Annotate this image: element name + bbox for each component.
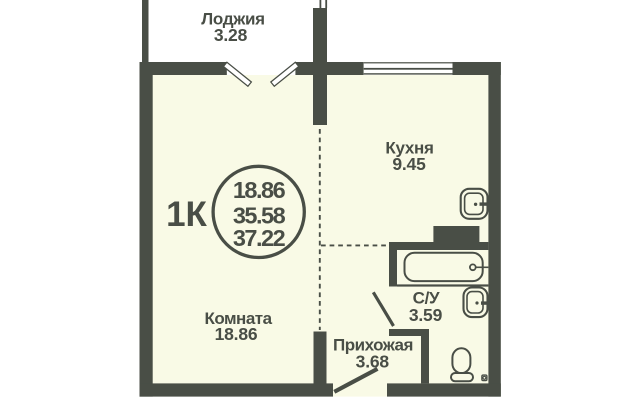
svg-text:3.68: 3.68 (356, 352, 390, 372)
svg-text:18.86: 18.86 (233, 177, 286, 203)
svg-text:9.45: 9.45 (392, 154, 426, 174)
svg-text:1К: 1К (166, 195, 207, 234)
svg-text:18.86: 18.86 (215, 324, 258, 344)
svg-text:3.28: 3.28 (214, 25, 248, 45)
svg-text:3.59: 3.59 (409, 305, 443, 325)
svg-text:37.22: 37.22 (233, 225, 286, 251)
